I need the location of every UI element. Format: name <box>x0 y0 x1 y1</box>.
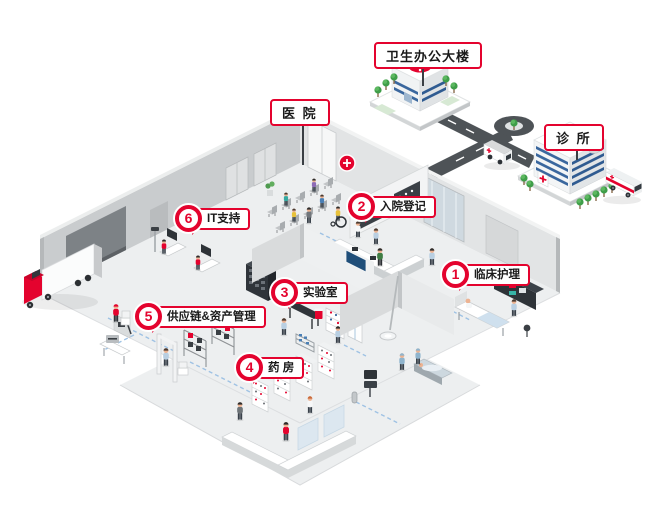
health-office-label: 卫生办公大楼 <box>374 42 482 69</box>
area-label: 供应链&资产管理 <box>157 306 266 328</box>
callout-admission: 2 入院登记 <box>348 193 436 220</box>
area-number-badge: 2 <box>348 193 375 220</box>
wall-badge-icon <box>339 155 355 171</box>
callout-it-support: 6 IT支持 <box>175 205 250 232</box>
hospital-infographic: 医 院 卫生办公大楼 诊 所 1 临床护理 2 入院登记 3 实验室 4 药 房… <box>0 0 660 506</box>
area-label: 实验室 <box>293 282 348 304</box>
area-label: 药 房 <box>258 357 304 379</box>
callout-laboratory: 3 实验室 <box>271 279 348 306</box>
biohazard-bin <box>314 309 323 319</box>
surgical-light <box>380 332 396 340</box>
callout-pharmacy: 4 药 房 <box>236 354 304 381</box>
callout-clinical-care: 1 临床护理 <box>442 261 530 288</box>
area-number-badge: 6 <box>175 205 202 232</box>
area-number-badge: 1 <box>442 261 469 288</box>
area-number-badge: 3 <box>271 279 298 306</box>
hospital-label: 医 院 <box>270 99 330 126</box>
area-label: 临床护理 <box>464 264 530 286</box>
area-number-badge: 5 <box>135 303 162 330</box>
isometric-illustration <box>0 0 660 506</box>
area-label: IT支持 <box>197 208 250 230</box>
hospital-label-connector <box>302 121 304 165</box>
callout-supply-chain: 5 供应链&资产管理 <box>135 303 266 330</box>
area-label: 入院登记 <box>370 196 436 218</box>
clinic-label: 诊 所 <box>544 124 604 151</box>
roundabout <box>494 116 534 136</box>
area-number-badge: 4 <box>236 354 263 381</box>
